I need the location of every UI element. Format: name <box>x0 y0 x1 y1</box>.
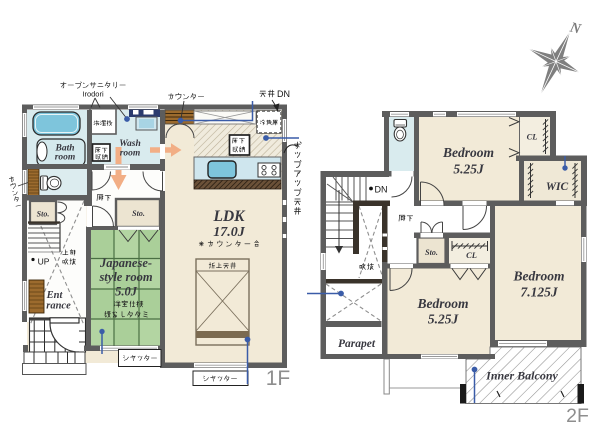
svg-text:Bedroom: Bedroom <box>442 145 494 160</box>
svg-text:2F: 2F <box>566 405 589 427</box>
svg-text:DN: DN <box>277 89 290 99</box>
svg-text:room: room <box>120 149 141 159</box>
svg-text:style room: style room <box>98 270 152 284</box>
svg-text:1F: 1F <box>266 367 291 390</box>
svg-text:5.25J: 5.25J <box>428 312 460 327</box>
svg-text:LDK: LDK <box>213 208 247 225</box>
svg-text:Wash: Wash <box>119 139 140 149</box>
svg-text:17.0J: 17.0J <box>213 225 246 240</box>
svg-text:CL: CL <box>527 132 538 142</box>
svg-text:UP: UP <box>38 257 50 267</box>
svg-text:rance: rance <box>46 301 71 312</box>
svg-text:Sto.: Sto. <box>37 210 50 219</box>
svg-text:WIC: WIC <box>546 181 569 193</box>
svg-text:Bedroom: Bedroom <box>416 296 468 311</box>
svg-text:Inner Balcony: Inner Balcony <box>485 369 558 383</box>
svg-text:Sto.: Sto. <box>425 248 438 257</box>
svg-text:Parapet: Parapet <box>338 338 376 350</box>
svg-text:DN: DN <box>375 185 388 195</box>
svg-text:7.125J: 7.125J <box>520 285 558 300</box>
svg-text:room: room <box>55 153 76 163</box>
svg-text:Sto.: Sto. <box>132 209 145 218</box>
svg-text:Bedroom: Bedroom <box>512 269 564 284</box>
svg-text:Ent: Ent <box>46 290 64 301</box>
svg-text:Japanese-: Japanese- <box>99 256 152 270</box>
svg-text:5.25J: 5.25J <box>453 162 485 177</box>
svg-text:5.0J: 5.0J <box>115 285 138 299</box>
svg-text:Irodori: Irodori <box>82 90 104 99</box>
svg-text:CL: CL <box>466 250 477 260</box>
